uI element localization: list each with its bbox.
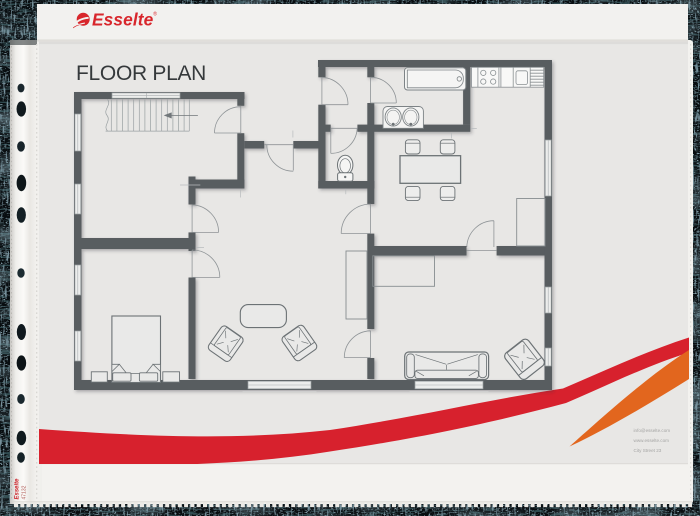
svg-text:Esselte: Esselte (15, 478, 21, 500)
svg-text:FLOOR PLAN: FLOOR PLAN (76, 62, 206, 85)
svg-text:Esselte: Esselte (92, 9, 154, 29)
svg-text:www.esselte.com: www.esselte.com (634, 438, 670, 443)
svg-text:47132: 47132 (22, 485, 28, 499)
svg-text:City Street 23: City Street 23 (634, 448, 662, 453)
svg-text:info@esselte.com: info@esselte.com (634, 428, 671, 433)
svg-text:®: ® (153, 11, 157, 18)
